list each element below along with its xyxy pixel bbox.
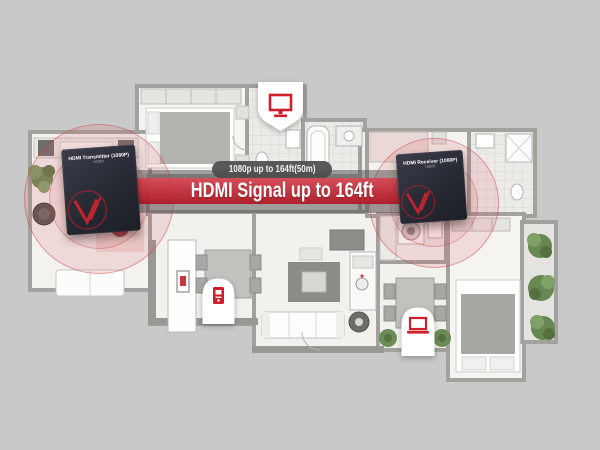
brand-logo-icon (66, 186, 113, 233)
transmitter-device: HDMI Transmitter (1080P) HDbitT (61, 145, 141, 236)
tv-badge (257, 82, 304, 132)
range-pill: 1080p up to 164ft(50m) (212, 161, 332, 178)
media-player-badge (201, 277, 236, 324)
receiver-device: HDMI Receiver (1080P) HDbitT (396, 150, 468, 225)
media-player-icon (213, 287, 224, 304)
balcony-plants (527, 233, 555, 340)
range-pill-label: 1080p up to 164ft(50m) (229, 164, 316, 175)
laptop-badge (400, 306, 436, 356)
coffee-table (302, 272, 326, 292)
banner-headline: HDMI Signal up to 164ft (191, 179, 374, 203)
laptop-icon (407, 318, 429, 334)
brand-logo-icon (400, 182, 441, 223)
scene: HDMI Signal up to 164ft 1080p up to 164f… (0, 0, 600, 450)
sofa-central (262, 312, 344, 338)
